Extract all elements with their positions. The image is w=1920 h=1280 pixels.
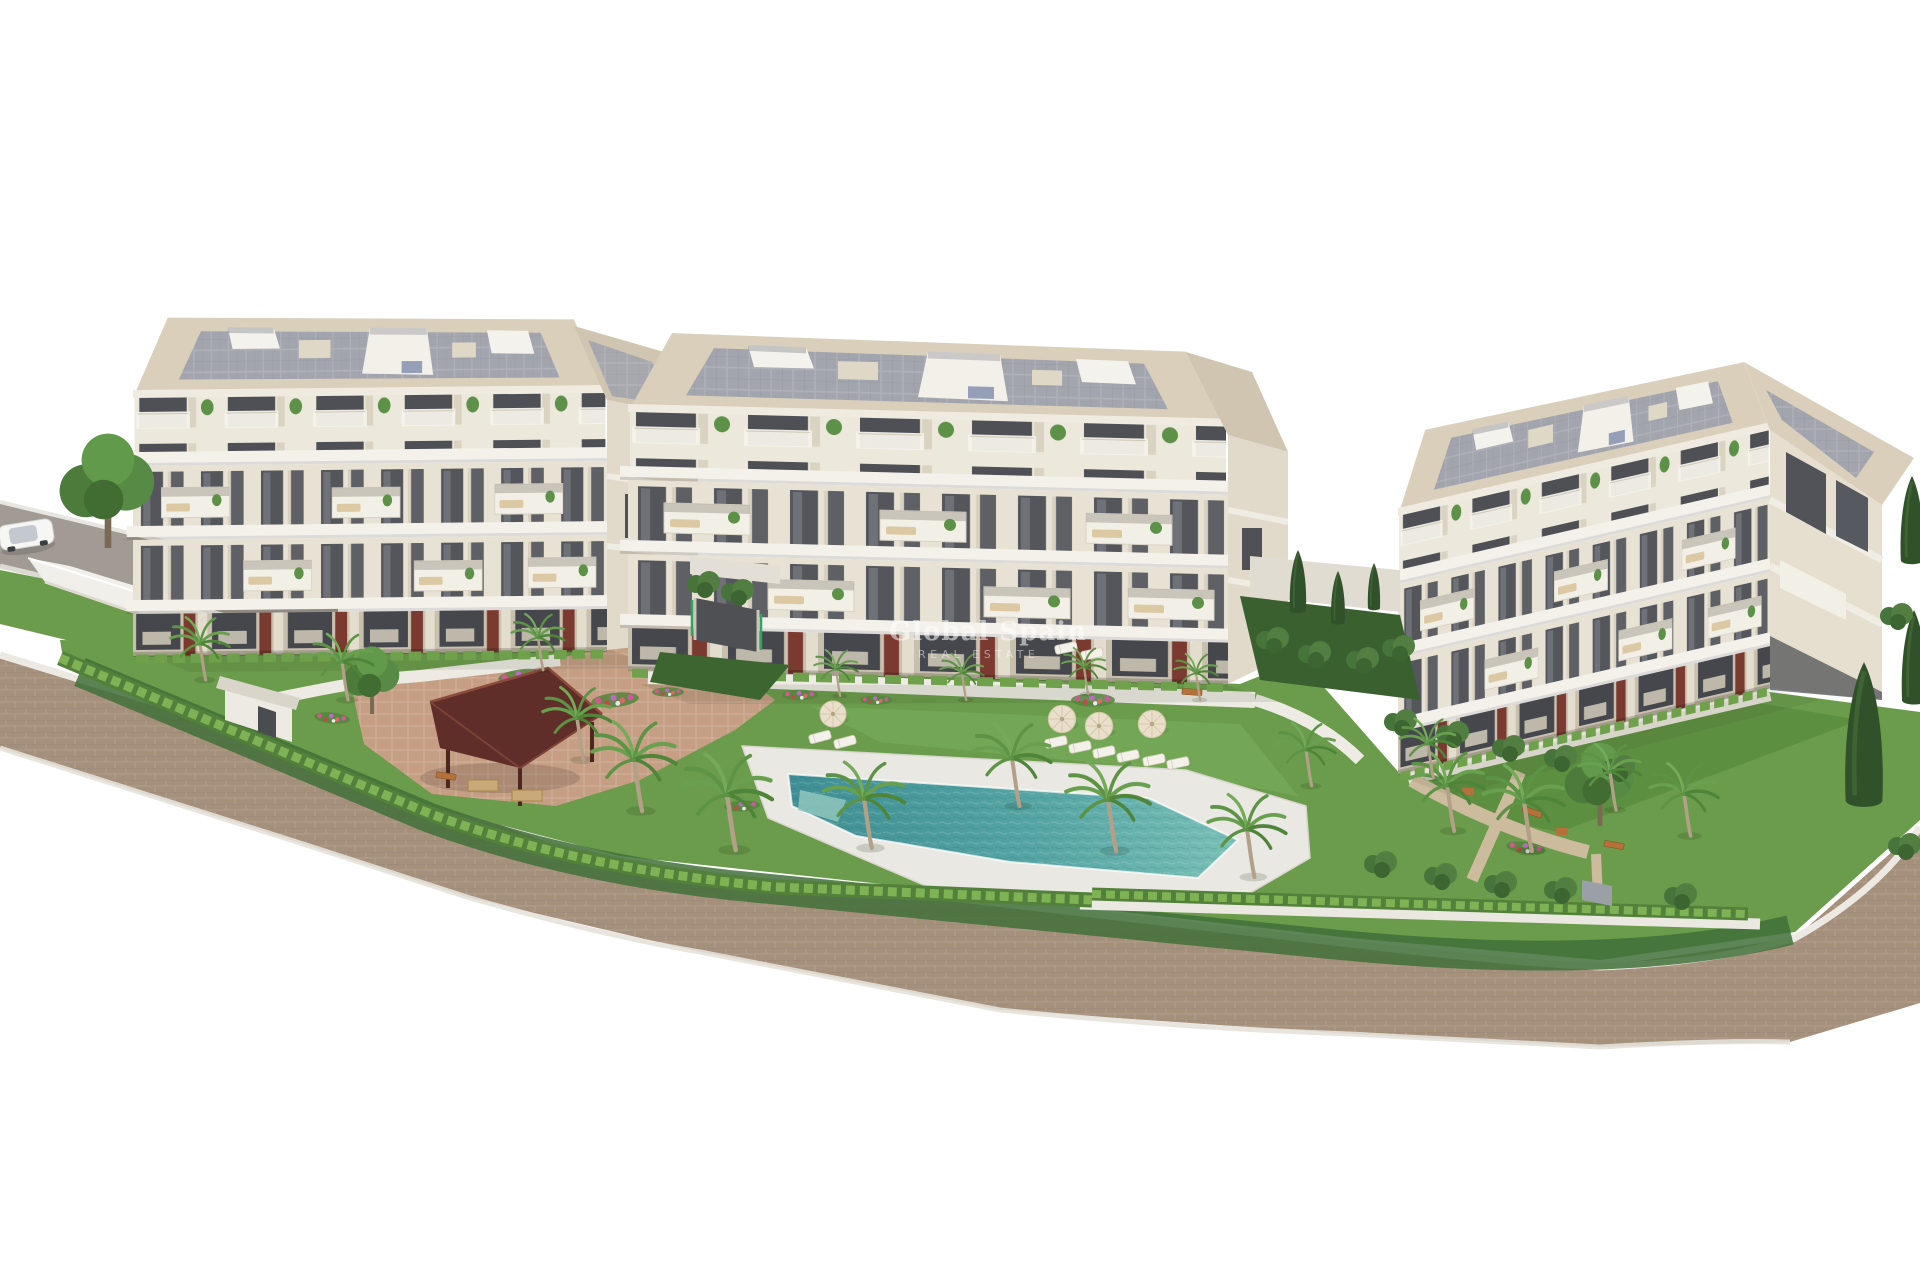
complex-render: [0, 0, 1920, 1280]
planter-box: [1556, 828, 1568, 835]
flower-bed: [782, 690, 818, 701]
building-left: [127, 313, 698, 659]
picnic-table: [512, 790, 542, 801]
render-canvas: Global Spain REAL ESTATE: [0, 0, 1920, 1280]
picnic-table: [468, 780, 498, 791]
flower-bed: [652, 687, 684, 697]
mid-right-gap: [1240, 556, 1420, 700]
flower-bed: [860, 695, 892, 705]
building-left-block: [127, 313, 614, 659]
